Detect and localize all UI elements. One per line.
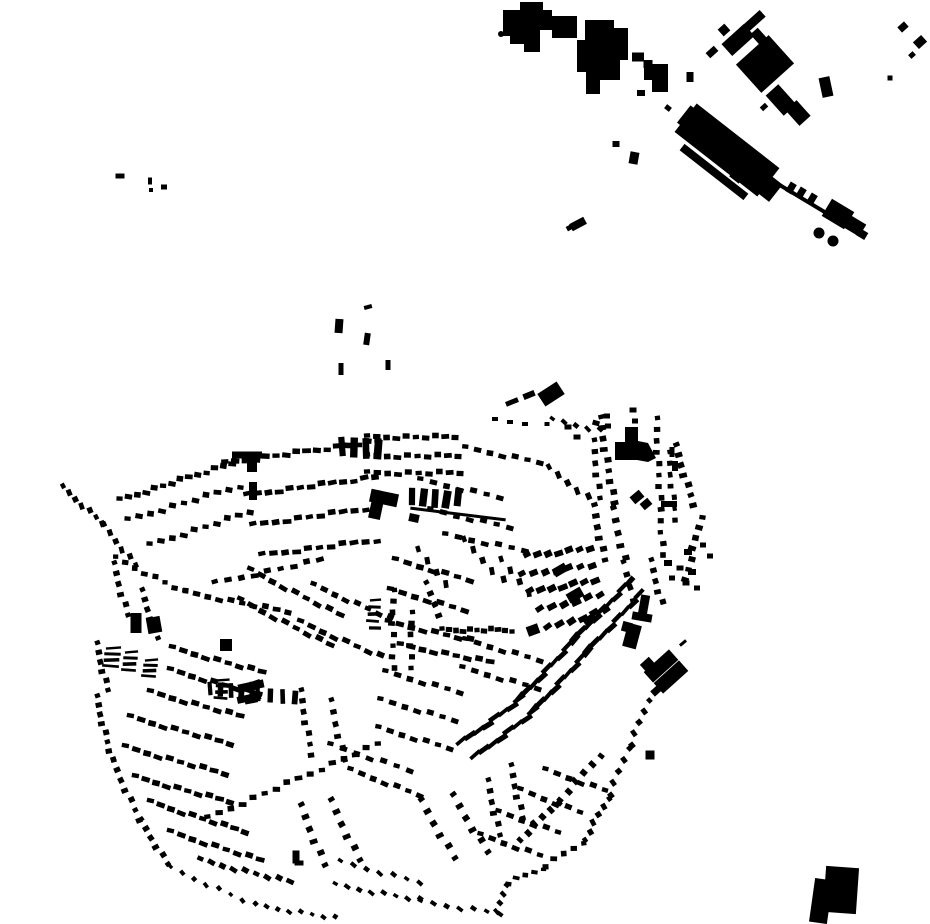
house-footprint (411, 594, 420, 601)
house-footprint (489, 567, 495, 576)
map-canvas (0, 0, 930, 924)
building-footprint (632, 419, 638, 424)
house-footprint (692, 534, 700, 541)
house-footprint (512, 875, 519, 880)
house-footprint (596, 483, 603, 489)
house-footprint (327, 479, 337, 485)
house-footprint (315, 556, 324, 563)
house-footprint (496, 899, 503, 906)
house-footprint (443, 903, 450, 910)
house-footprint (296, 617, 304, 623)
house-footprint (610, 489, 617, 496)
house-footprint (681, 576, 690, 583)
house-footprint (78, 502, 85, 510)
house-footprint (373, 434, 381, 439)
house-footprint (498, 555, 504, 562)
house-footprint (103, 677, 110, 684)
house-footprint (465, 517, 474, 524)
house-footprint (589, 781, 597, 788)
house-footprint (656, 461, 662, 467)
house-footprint (444, 686, 451, 692)
house-footprint (446, 627, 453, 632)
house-footprint (107, 529, 114, 537)
house-footprint (95, 702, 102, 708)
house-footprint (364, 433, 371, 438)
house-footprint (508, 762, 514, 768)
house-footprint (564, 787, 573, 796)
house-footprint (299, 698, 306, 704)
house-footprint (292, 625, 300, 632)
house-footprint (158, 508, 167, 514)
house-footprint (568, 578, 579, 587)
house-footprint (592, 437, 598, 442)
house-footprint (313, 447, 321, 453)
house-footprint (443, 632, 451, 638)
house-footprint (595, 535, 603, 541)
building-footprint (718, 24, 731, 37)
house-footprint (470, 545, 477, 553)
house-footprint (524, 846, 532, 853)
house-footprint (338, 508, 348, 514)
house-footprint (241, 866, 250, 874)
house-footprint (408, 632, 414, 638)
house-footprint (277, 566, 284, 572)
house-footprint (181, 501, 188, 506)
house-footprint (151, 844, 159, 851)
house-footprint (165, 754, 174, 761)
house-footprint (574, 487, 581, 496)
house-footprint (564, 803, 572, 810)
house-footprint (561, 851, 567, 857)
house-footprint (391, 556, 399, 562)
house-footprint (115, 580, 122, 587)
house-footprint (528, 790, 537, 797)
house-footprint (260, 520, 269, 526)
house-footprint (60, 483, 66, 490)
house-footprint (564, 545, 574, 554)
house-footprint (222, 846, 230, 852)
house-footprint (203, 470, 210, 475)
house-footprint (353, 643, 361, 650)
house-footprint (579, 578, 589, 587)
house-footprint (157, 538, 165, 544)
house-footprint (124, 494, 132, 500)
house-footprint (376, 870, 383, 877)
figure-ground-map (0, 0, 930, 924)
house-footprint (178, 699, 188, 706)
house-footprint (307, 484, 316, 490)
house-footprint (598, 414, 605, 420)
house-footprint (242, 458, 250, 464)
house-footprint (188, 673, 197, 680)
building-footprint (339, 363, 344, 375)
house-footprint (302, 448, 311, 453)
tank-footprint (814, 228, 825, 239)
house-footprint (655, 484, 661, 489)
house-footprint (291, 587, 301, 595)
house-footprint (268, 614, 278, 623)
house-footprint (328, 509, 336, 516)
house-footprint (213, 490, 221, 495)
house-footprint (125, 612, 131, 618)
house-footprint (117, 592, 125, 598)
house-footprint (593, 524, 601, 531)
house-footprint (329, 634, 339, 642)
house-footprint (517, 786, 524, 792)
house-footprint (160, 483, 166, 488)
house-footprint (540, 796, 548, 803)
house-footprint (546, 602, 557, 612)
house-footprint (118, 546, 124, 554)
house-footprint (207, 682, 212, 696)
house-footprint (273, 787, 280, 792)
house-footprint (439, 714, 446, 720)
house-footprint (409, 654, 415, 659)
house-footprint (316, 513, 325, 519)
house-footprint (490, 811, 497, 817)
house-footprint (499, 890, 506, 897)
house-footprint (180, 532, 189, 538)
house-footprint (392, 436, 400, 441)
house-footprint (123, 662, 137, 666)
house-footprint (609, 779, 617, 787)
house-footprint (495, 821, 502, 827)
house-footprint (486, 644, 494, 651)
house-footprint (395, 621, 404, 628)
house-footprint (592, 513, 600, 519)
house-footprint (169, 502, 177, 508)
house-footprint (505, 701, 519, 712)
house-footprint (502, 628, 508, 634)
house-footprint (498, 453, 507, 460)
house-footprint (494, 627, 501, 632)
house-footprint (312, 600, 322, 609)
house-footprint (350, 479, 358, 484)
building-footprint (615, 427, 656, 462)
house-footprint (271, 519, 279, 526)
house-footprint (126, 713, 134, 719)
house-footprint (176, 669, 185, 676)
house-footprint (217, 678, 229, 681)
house-footprint (303, 558, 311, 565)
house-footprint (215, 597, 224, 604)
house-footprint (443, 483, 450, 490)
house-footprint (650, 567, 657, 573)
house-footprint (167, 805, 176, 812)
building-footprint (638, 594, 650, 615)
house-footprint (237, 574, 245, 581)
house-footprint (153, 754, 163, 761)
house-footprint (197, 855, 204, 862)
house-footprint (211, 841, 220, 849)
house-footprint (542, 823, 550, 830)
house-footprint (398, 732, 406, 739)
building-footprint (707, 554, 713, 559)
house-footprint (423, 807, 432, 815)
house-footprint (589, 818, 596, 826)
house-footprint (654, 427, 660, 432)
house-footprint (155, 635, 161, 641)
house-footprint (144, 606, 151, 613)
house-footprint (320, 914, 327, 920)
house-footprint (296, 485, 304, 491)
house-footprint (422, 737, 430, 744)
house-footprint (451, 435, 458, 441)
house-footprint (93, 514, 99, 521)
house-footprint (660, 552, 666, 558)
house-footprint (474, 628, 479, 633)
house-footprint (549, 416, 555, 422)
building-footprint (823, 866, 859, 914)
house-footprint (585, 492, 593, 501)
house-footprint (392, 665, 398, 671)
house-footprint (559, 599, 570, 609)
house-footprint (413, 708, 422, 715)
house-footprint (113, 766, 121, 773)
house-footprint (522, 873, 528, 878)
house-footprint (672, 517, 678, 522)
house-footprint (524, 654, 531, 660)
house-footprint (141, 596, 149, 603)
house-footprint (157, 691, 166, 698)
house-footprint (166, 666, 174, 672)
house-footprint (261, 791, 268, 796)
building-footprint (694, 586, 700, 591)
house-footprint (111, 560, 117, 566)
house-footprint (321, 862, 328, 869)
house-footprint (439, 626, 445, 631)
house-footprint (357, 770, 366, 777)
house-footprint (177, 831, 187, 838)
house-footprint (508, 545, 515, 550)
house-footprint (565, 775, 573, 782)
house-footprint (384, 454, 391, 460)
house-footprint (131, 773, 139, 779)
house-footprint (94, 693, 100, 699)
house-footprint (249, 682, 254, 696)
house-footprint (600, 803, 608, 811)
house-footprint (488, 799, 495, 806)
house-footprint (132, 807, 139, 813)
house-footprint (441, 490, 452, 509)
house-footprint (263, 567, 271, 574)
house-footprint (269, 550, 278, 556)
building-footprint (592, 420, 600, 427)
house-footprint (475, 655, 484, 662)
building-footprint (672, 461, 678, 471)
house-footprint (275, 874, 283, 882)
house-footprint (576, 809, 583, 815)
house-footprint (328, 697, 334, 703)
house-footprint (506, 812, 515, 819)
house-footprint (146, 798, 154, 804)
house-footprint (667, 449, 672, 454)
house-footprint (450, 717, 459, 724)
building-footprint (677, 566, 684, 571)
house-footprint (652, 578, 659, 585)
house-footprint (285, 485, 294, 491)
house-footprint (543, 549, 553, 558)
building-footprint (679, 639, 687, 646)
house-footprint (307, 771, 314, 776)
house-footprint (214, 737, 224, 743)
house-footprint (585, 545, 595, 553)
house-footprint (486, 788, 493, 794)
building-footprint (669, 576, 675, 581)
house-footprint (488, 626, 494, 632)
house-footprint (550, 856, 557, 861)
house-footprint (659, 598, 666, 605)
house-footprint (350, 437, 358, 457)
house-footprint (332, 881, 338, 887)
house-footprint (509, 772, 516, 778)
house-footprint (282, 519, 291, 524)
house-footprint (429, 819, 438, 827)
house-footprint (188, 836, 197, 843)
house-footprint (228, 892, 233, 897)
house-footprint (419, 488, 428, 507)
building-footprint (505, 397, 519, 407)
house-footprint (396, 641, 404, 646)
house-footprint (66, 489, 73, 497)
house-footprint (306, 730, 313, 736)
house-footprint (432, 433, 439, 439)
house-footprint (415, 545, 421, 552)
house-footprint (406, 676, 414, 683)
house-footprint (320, 585, 329, 593)
house-footprint (423, 579, 430, 585)
house-footprint (673, 441, 680, 447)
house-footprint (435, 612, 443, 619)
house-footprint (224, 660, 232, 666)
house-footprint (332, 913, 338, 919)
house-footprint (351, 844, 360, 852)
house-footprint (493, 521, 500, 526)
building-footprint (335, 319, 344, 334)
house-footprint (179, 869, 186, 876)
tank-footprint (498, 31, 504, 37)
house-footprint (401, 704, 409, 711)
building-footprint (664, 560, 672, 566)
house-footprint (309, 912, 314, 917)
house-footprint (535, 604, 545, 613)
house-footprint (301, 720, 308, 725)
house-footprint (449, 604, 457, 610)
house-footprint (394, 472, 402, 477)
house-footprint (405, 767, 414, 774)
house-footprint (310, 581, 317, 587)
house-footprint (268, 578, 277, 586)
house-footprint (198, 677, 208, 684)
house-footprint (416, 879, 423, 886)
house-footprint (339, 745, 348, 752)
building-footprint (897, 21, 908, 32)
house-footprint (125, 650, 138, 653)
house-footprint (232, 850, 242, 858)
house-footprint (511, 783, 518, 790)
house-footprint (427, 506, 434, 511)
building-footprint (631, 611, 652, 622)
house-footprint (587, 562, 597, 570)
building-footprint (295, 861, 304, 866)
house-footprint (532, 550, 542, 559)
house-footprint (204, 733, 213, 740)
house-footprint (481, 628, 488, 633)
house-footprint (177, 759, 185, 765)
house-footprint (252, 870, 260, 877)
house-footprint (414, 454, 420, 459)
house-footprint (479, 556, 486, 564)
house-footprint (202, 492, 209, 498)
house-footprint (463, 655, 472, 662)
house-footprint (390, 871, 397, 878)
house-footprint (292, 690, 299, 704)
house-footprint (298, 908, 305, 914)
house-footprint (324, 448, 331, 453)
house-footprint (374, 470, 382, 475)
house-footprint (520, 713, 534, 724)
house-footprint (294, 514, 303, 520)
house-footprint (169, 535, 176, 541)
house-footprint (672, 494, 678, 500)
house-footprint (380, 780, 389, 787)
house-footprint (431, 489, 439, 508)
house-footprint (439, 509, 447, 516)
building-footprint (522, 422, 528, 426)
house-footprint (425, 471, 433, 476)
house-footprint (393, 763, 400, 769)
house-footprint (535, 657, 544, 664)
house-footprint (132, 565, 138, 571)
house-footprint (403, 433, 410, 438)
house-footprint (453, 513, 460, 520)
house-footprint (459, 629, 466, 634)
house-footprint (207, 858, 216, 866)
house-footprint (653, 450, 660, 455)
house-footprint (427, 568, 437, 575)
house-footprint (497, 832, 503, 838)
building-footprint (687, 72, 694, 82)
house-footprint (541, 868, 546, 872)
house-footprint (429, 649, 439, 656)
building-footprint (507, 420, 513, 424)
house-footprint (156, 801, 166, 808)
house-footprint (483, 672, 491, 679)
house-footprint (392, 588, 398, 593)
house-footprint (211, 465, 219, 470)
house-footprint (436, 469, 443, 475)
building-footprint (637, 90, 645, 96)
house-footprint (225, 708, 234, 715)
house-footprint (131, 746, 140, 753)
house-footprint (538, 813, 547, 822)
building-footprint (740, 10, 765, 34)
house-footprint (576, 563, 585, 571)
house-footprint (280, 689, 285, 704)
house-footprint (360, 474, 369, 481)
house-footprint (237, 595, 245, 602)
building-footprint (661, 501, 677, 507)
house-footprint (452, 653, 460, 658)
house-footprint (689, 502, 697, 509)
house-footprint (477, 831, 484, 837)
house-footprint (380, 889, 387, 896)
house-footprint (500, 575, 507, 583)
house-footprint (554, 619, 565, 629)
house-footprint (513, 794, 520, 800)
house-footprint (173, 784, 182, 791)
house-footprint (204, 594, 211, 601)
